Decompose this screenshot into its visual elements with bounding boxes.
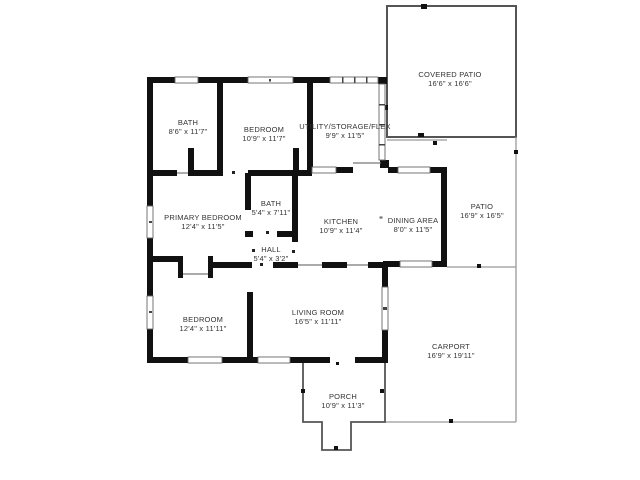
room-name: PATIO (460, 202, 504, 211)
room-label-bath-2: BATH 5'4" x 7'11" (252, 199, 291, 217)
room-label-hall: HALL 5'4" x 3'2" (254, 245, 289, 263)
room-name: HALL (254, 245, 289, 254)
room-name: BEDROOM (242, 125, 285, 134)
room-label-bedroom-1: BEDROOM 10'9" x 11'7" (242, 125, 285, 143)
room-dims: 12'4" x 11'11" (180, 324, 227, 333)
room-label-living-room: LIVING ROOM 16'5" x 11'11" (292, 308, 344, 326)
floor-plan: COVERED PATIO 16'6" x 16'6" BATH 8'6" x … (0, 0, 640, 480)
room-label-porch: PORCH 10'9" x 11'3" (321, 392, 364, 410)
room-dims: 10'9" x 11'3" (321, 401, 364, 410)
room-dims: 16'9" x 19'11" (427, 351, 475, 360)
room-dims: 16'6" x 16'6" (418, 79, 481, 88)
patio-carport-outline (385, 137, 516, 422)
room-label-utility: UTILITY/STORAGE/FLEX 9'9" x 11'5" (299, 122, 390, 140)
room-dims: 12'4" x 11'5" (164, 222, 242, 231)
room-name: LIVING ROOM (292, 308, 344, 317)
floor-plan-drawing (0, 0, 640, 480)
room-name: COVERED PATIO (418, 70, 481, 79)
room-dims: 16'9" x 16'5" (460, 211, 504, 220)
room-name: UTILITY/STORAGE/FLEX (299, 122, 390, 131)
room-label-kitchen: KITCHEN 10'9" x 11'4" (319, 217, 362, 235)
room-name: BATH (252, 199, 291, 208)
room-dims: 8'6" x 11'7" (169, 127, 208, 136)
room-name: CARPORT (427, 342, 475, 351)
room-label-carport: CARPORT 16'9" x 19'11" (427, 342, 475, 360)
room-dims: 16'5" x 11'11" (292, 317, 344, 326)
room-name: KITCHEN (319, 217, 362, 226)
room-name: DINING AREA (388, 216, 439, 225)
room-label-primary-bedroom: PRIMARY BEDROOM 12'4" x 11'5" (164, 213, 242, 231)
room-name: BATH (169, 118, 208, 127)
room-dims: 8'0" x 11'5" (388, 225, 439, 234)
room-dims: 10'9" x 11'4" (319, 226, 362, 235)
room-name: PRIMARY BEDROOM (164, 213, 242, 222)
room-label-bath-1: BATH 8'6" x 11'7" (169, 118, 208, 136)
room-label-covered-patio: COVERED PATIO 16'6" x 16'6" (418, 70, 481, 88)
room-name: PORCH (321, 392, 364, 401)
room-label-patio: PATIO 16'9" x 16'5" (460, 202, 504, 220)
room-label-bedroom-2: BEDROOM 12'4" x 11'11" (180, 315, 227, 333)
room-dims: 5'4" x 7'11" (252, 208, 291, 217)
kitchen-dining-opening-mark: " (379, 216, 383, 225)
room-dims: 9'9" x 11'5" (299, 131, 390, 140)
room-label-dining-area: DINING AREA 8'0" x 11'5" (388, 216, 439, 234)
room-dims: 10'9" x 11'7" (242, 134, 285, 143)
room-name: BEDROOM (180, 315, 227, 324)
room-dims: 5'4" x 3'2" (254, 254, 289, 263)
window-pane-ticks (149, 77, 387, 313)
